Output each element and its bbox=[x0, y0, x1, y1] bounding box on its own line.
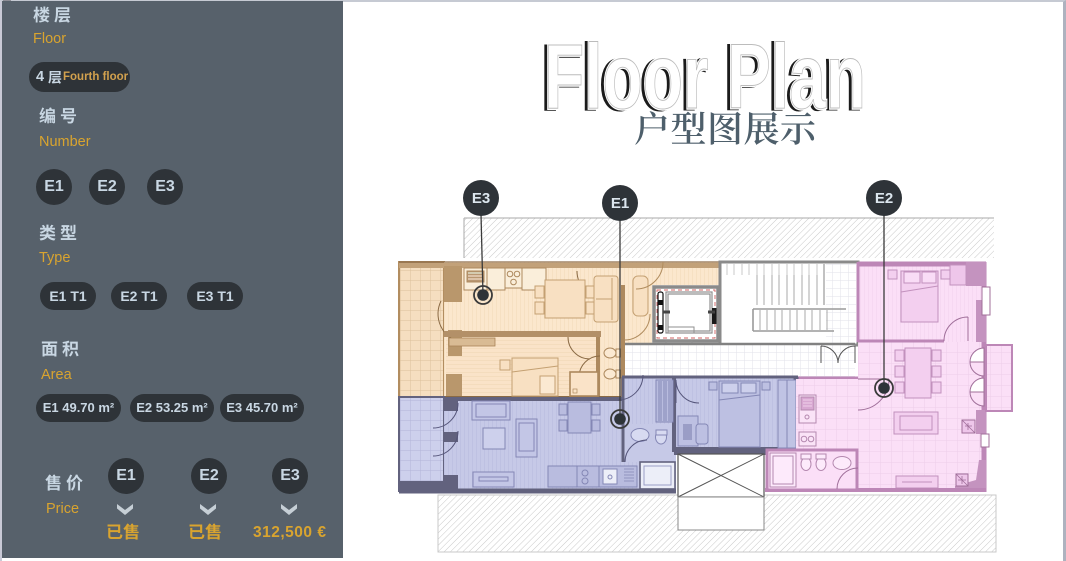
svg-text:E1: E1 bbox=[611, 195, 629, 212]
svg-text:E3: E3 bbox=[472, 190, 490, 207]
svg-text:E2: E2 bbox=[875, 190, 893, 207]
